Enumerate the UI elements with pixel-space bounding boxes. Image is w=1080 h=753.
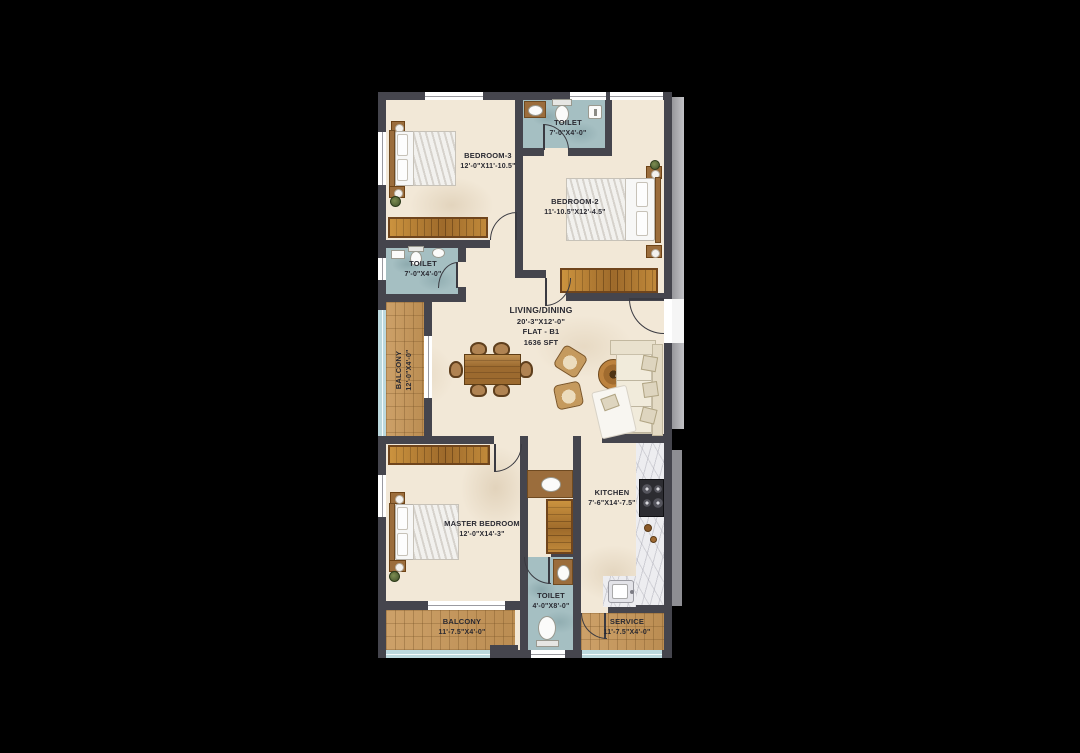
room-dims: 12'-0"X4'-0" [405, 325, 415, 415]
room-dims: 20'-3"X12'-0" [491, 317, 591, 328]
room-name: LIVING/DINING [491, 305, 591, 317]
room-label-balcony-left: BALCONY 12'-0"X4'-0" [394, 325, 416, 415]
room-dims: 4'-0"X8'-0" [509, 602, 593, 612]
exterior-door-gap [672, 299, 684, 343]
room-dims: 11'-7.5"X4'-0" [575, 628, 679, 638]
room-name: MASTER BEDROOM [427, 519, 537, 530]
room-name: BALCONY [394, 325, 405, 415]
toilet-shelf [391, 250, 405, 259]
window [570, 92, 606, 100]
wall-segment [515, 100, 523, 278]
dining-chair [470, 383, 487, 397]
window [428, 601, 505, 610]
room-label-bedroom2: BEDROOM-2 11'-10.5"X12'-4.5" [520, 197, 630, 217]
room-dims: 11'-10.5"X12'-4.5" [520, 208, 630, 218]
dining-chair [449, 361, 463, 378]
entry-opening [664, 299, 672, 343]
room-label-toilet-master: TOILET 4'-0"X8'-0" [509, 591, 593, 611]
dining-chair [519, 361, 533, 378]
wall-segment [378, 601, 428, 610]
sofa [596, 338, 664, 438]
room-name: TOILET [383, 259, 463, 270]
room-name: SERVICE [575, 617, 679, 628]
door-leaf [629, 298, 664, 300]
wardrobe [560, 268, 658, 293]
flat-area: 1636 SFT [491, 338, 591, 349]
room-dims: 12'-0"X11'-10.5" [438, 162, 538, 172]
dining-chair [493, 383, 510, 397]
room-label-toilet-mid: TOILET 7'-0"X4'-0" [383, 259, 463, 279]
room-dims: 11'-7.5"X4'-0" [410, 628, 514, 638]
window [378, 475, 386, 517]
wardrobe [388, 445, 490, 465]
wall-segment [386, 436, 494, 444]
nightstand [646, 245, 662, 258]
room-label-living: LIVING/DINING 20'-3"X12'-0" FLAT - B1 16… [491, 305, 591, 348]
room-name: KITCHEN [567, 488, 657, 499]
glazed-railing [582, 650, 662, 658]
room-label-toilet-top: TOILET 7'-0"X4'-0" [526, 118, 610, 138]
room-label-service: SERVICE 11'-7.5"X4'-0" [575, 617, 679, 637]
exterior-strip [672, 450, 682, 606]
door-leaf [548, 557, 550, 584]
glazed-railing [386, 650, 490, 658]
room-name: TOILET [509, 591, 593, 602]
plant [389, 571, 400, 582]
room-name: BEDROOM-3 [438, 151, 538, 162]
kitchen-accessory [650, 536, 657, 543]
sliding-door-window [424, 336, 432, 398]
kitchen-accessory [644, 524, 652, 532]
vanity-counter [553, 559, 573, 585]
room-label-bedroom3: BEDROOM-3 12'-0"X11'-10.5" [438, 151, 538, 171]
window [610, 92, 663, 100]
kitchen-sink [608, 580, 634, 603]
room-label-kitchen: KITCHEN 7'-6"X14'-7.5" [567, 488, 657, 508]
wall-segment [490, 645, 518, 658]
wall-segment [520, 436, 528, 650]
room-dims: 7'-6"X14'-7.5" [567, 499, 657, 509]
window [531, 650, 565, 658]
wall-segment [568, 148, 605, 156]
room-name: BEDROOM-2 [520, 197, 630, 208]
washbasin [432, 248, 445, 258]
shower [588, 105, 602, 119]
wc-toilet [536, 616, 559, 648]
room-name: TOILET [526, 118, 610, 129]
flat-number: FLAT - B1 [491, 327, 591, 338]
door-leaf [515, 212, 517, 240]
wall-segment [386, 294, 458, 302]
washbasin-counter [524, 101, 546, 118]
room-name: BALCONY [410, 617, 514, 628]
glazed-railing [378, 310, 386, 436]
plant [390, 196, 401, 207]
floor-plan-canvas: BEDROOM-3 12'-0"X11'-10.5" TOILET 7'-0"X… [0, 0, 1080, 753]
room-dims: 7'-0"X4'-0" [383, 270, 463, 280]
window [425, 92, 483, 100]
exterior-strip [672, 343, 684, 429]
wall-segment [386, 240, 490, 248]
exterior-strip [672, 97, 684, 299]
door-leaf [545, 278, 547, 306]
wall-segment [664, 92, 672, 658]
nightstand [389, 560, 406, 572]
plant [650, 160, 660, 170]
dining-table [464, 354, 521, 385]
room-dims: 12'-0"X14'-3" [427, 530, 537, 540]
wall-segment [424, 294, 432, 336]
wall-segment [523, 270, 546, 278]
window [378, 132, 386, 185]
wall-segment [458, 287, 466, 302]
door-leaf [494, 444, 496, 472]
wardrobe [388, 217, 488, 238]
room-label-balcony-bottom: BALCONY 11'-7.5"X4'-0" [410, 617, 514, 637]
room-dims: 7'-0"X4'-0" [526, 129, 610, 139]
room-label-master-bedroom: MASTER BEDROOM 12'-0"X14'-3" [427, 519, 537, 539]
